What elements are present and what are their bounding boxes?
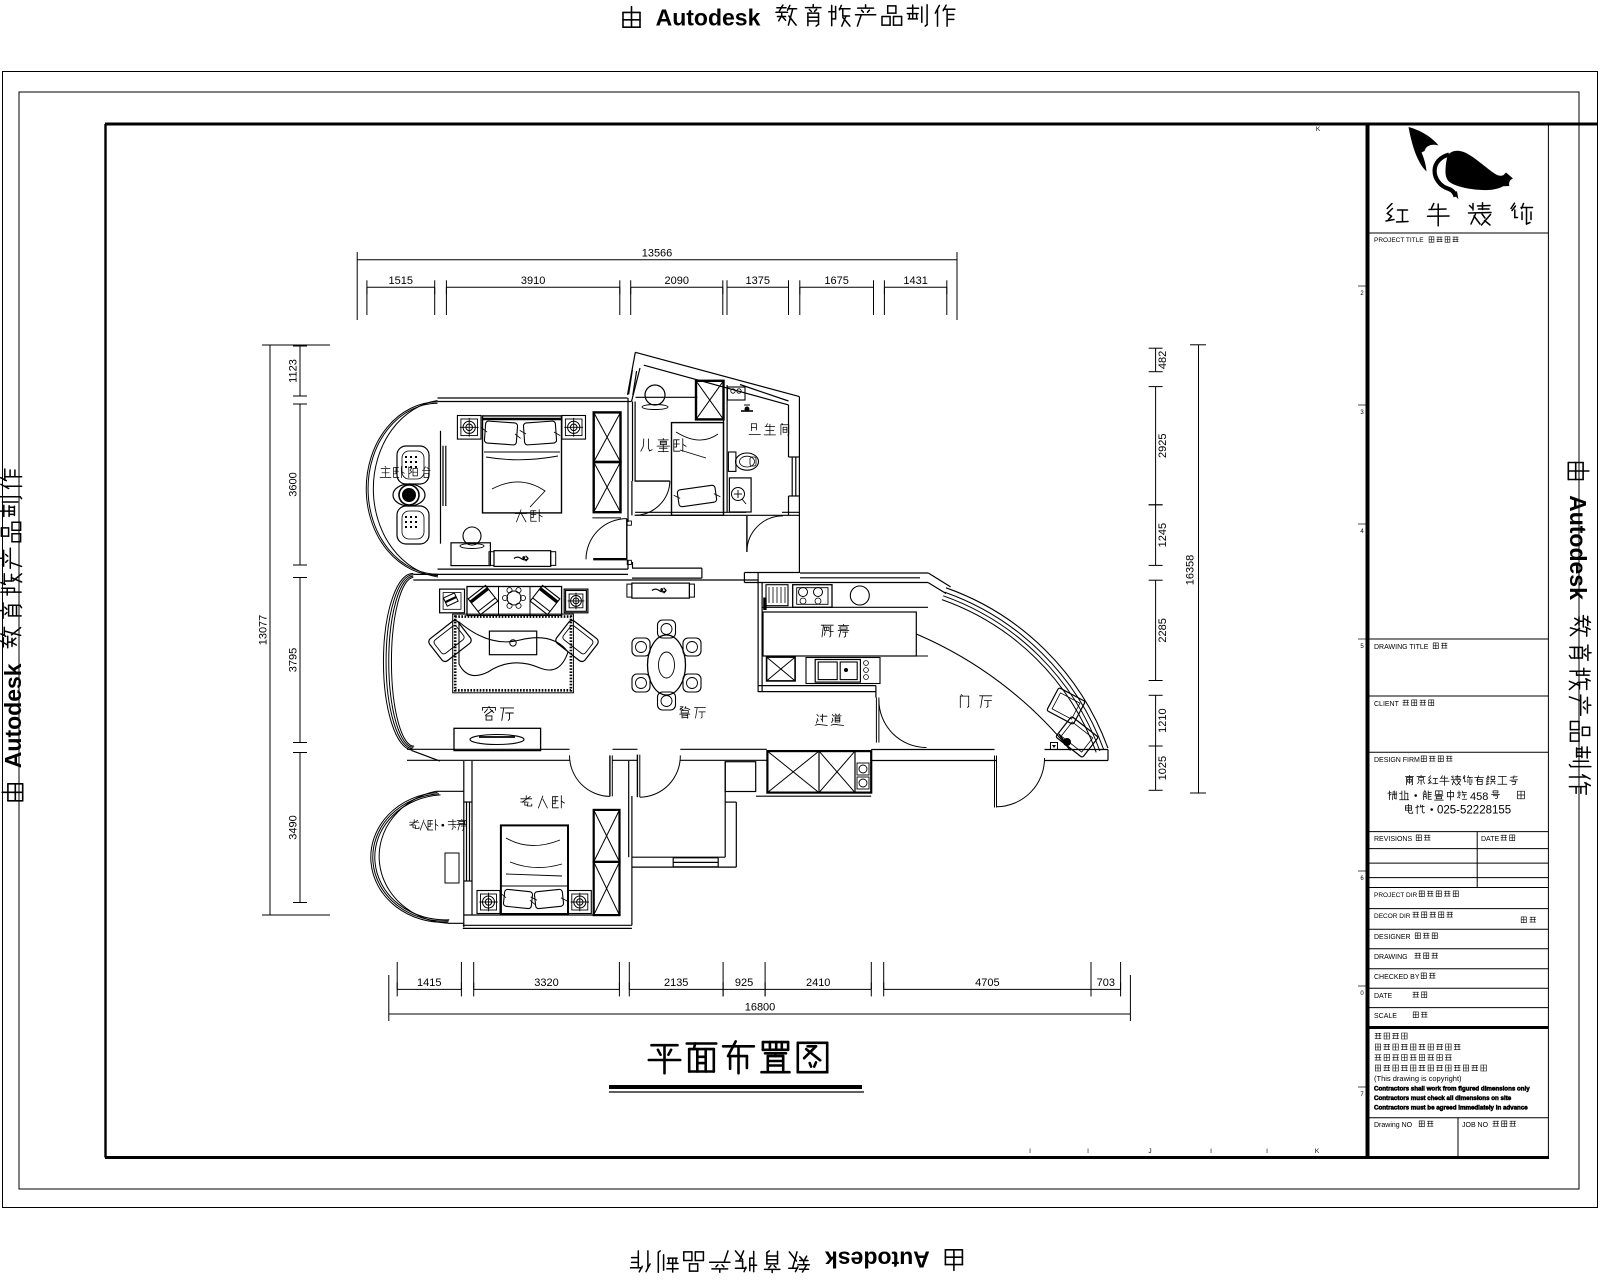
svg-text:DECOR DIR: DECOR DIR xyxy=(1374,913,1411,920)
svg-text:PROJECT TITLE: PROJECT TITLE xyxy=(1374,237,1424,244)
svg-text:458: 458 xyxy=(1470,791,1488,803)
svg-text:DATE: DATE xyxy=(1374,993,1392,1000)
svg-text:4705: 4705 xyxy=(975,977,999,989)
svg-text:CLIENT: CLIENT xyxy=(1374,701,1400,708)
svg-text:025-52228155: 025-52228155 xyxy=(1437,805,1511,817)
svg-text:1415: 1415 xyxy=(417,977,441,989)
svg-text:1675: 1675 xyxy=(824,275,848,287)
svg-text:JOB NO: JOB NO xyxy=(1462,1122,1489,1129)
svg-text:16358: 16358 xyxy=(1185,555,1197,586)
svg-text:2090: 2090 xyxy=(665,275,689,287)
svg-text:I: I xyxy=(1210,1148,1212,1155)
svg-text:1515: 1515 xyxy=(389,275,413,287)
svg-text:1431: 1431 xyxy=(903,275,927,287)
svg-text:CHECKED BY: CHECKED BY xyxy=(1374,974,1420,981)
svg-text:J: J xyxy=(1148,1148,1151,1155)
svg-text:16800: 16800 xyxy=(745,1002,776,1014)
svg-text:3490: 3490 xyxy=(288,815,300,839)
svg-text:K: K xyxy=(1316,126,1321,133)
svg-text:1123: 1123 xyxy=(288,359,300,383)
svg-text:2285: 2285 xyxy=(1157,618,1169,642)
svg-text:Contractors must be agreed imm: Contractors must be agreed immediately i… xyxy=(1374,1105,1528,1112)
svg-text:DRAWING: DRAWING xyxy=(1374,954,1408,961)
svg-text:1375: 1375 xyxy=(746,275,770,287)
svg-text:SCALE: SCALE xyxy=(1374,1013,1397,1020)
svg-text:703: 703 xyxy=(1097,977,1115,989)
svg-text:Drawing NO: Drawing NO xyxy=(1374,1122,1413,1129)
svg-text:I: I xyxy=(1087,1148,1089,1155)
svg-text:2925: 2925 xyxy=(1157,433,1169,457)
svg-text:925: 925 xyxy=(735,977,753,989)
svg-text:3795: 3795 xyxy=(288,648,300,672)
svg-text:Contractors shall work from fi: Contractors shall work from figured dime… xyxy=(1374,1086,1530,1093)
svg-text:482: 482 xyxy=(1157,351,1169,369)
svg-text:DRAWING TITLE: DRAWING TITLE xyxy=(1374,644,1429,651)
svg-text:1210: 1210 xyxy=(1157,708,1169,732)
svg-text:K: K xyxy=(1315,1148,1320,1155)
svg-text:3600: 3600 xyxy=(288,472,300,496)
svg-text:I: I xyxy=(1029,1148,1031,1155)
svg-text:13566: 13566 xyxy=(642,248,673,260)
svg-text:1025: 1025 xyxy=(1157,756,1169,780)
svg-text:1245: 1245 xyxy=(1157,523,1169,547)
svg-text:2410: 2410 xyxy=(806,977,830,989)
svg-text:13077: 13077 xyxy=(258,615,270,646)
svg-text:I: I xyxy=(1266,1148,1268,1155)
svg-text:Contractors must check all dim: Contractors must check all dimensions on… xyxy=(1374,1095,1512,1102)
svg-text:3910: 3910 xyxy=(521,275,545,287)
svg-text:DATE: DATE xyxy=(1481,836,1499,843)
svg-text:3320: 3320 xyxy=(534,977,558,989)
svg-text:REVISIONS: REVISIONS xyxy=(1374,836,1412,843)
svg-text:(This drawing is copyright): (This drawing is copyright) xyxy=(1374,1074,1462,1083)
svg-text:PROJECT DIR: PROJECT DIR xyxy=(1374,892,1418,899)
svg-text:2135: 2135 xyxy=(664,977,688,989)
svg-text:DESIGN FIRM: DESIGN FIRM xyxy=(1374,757,1420,764)
svg-text:DESIGNER: DESIGNER xyxy=(1374,934,1411,941)
